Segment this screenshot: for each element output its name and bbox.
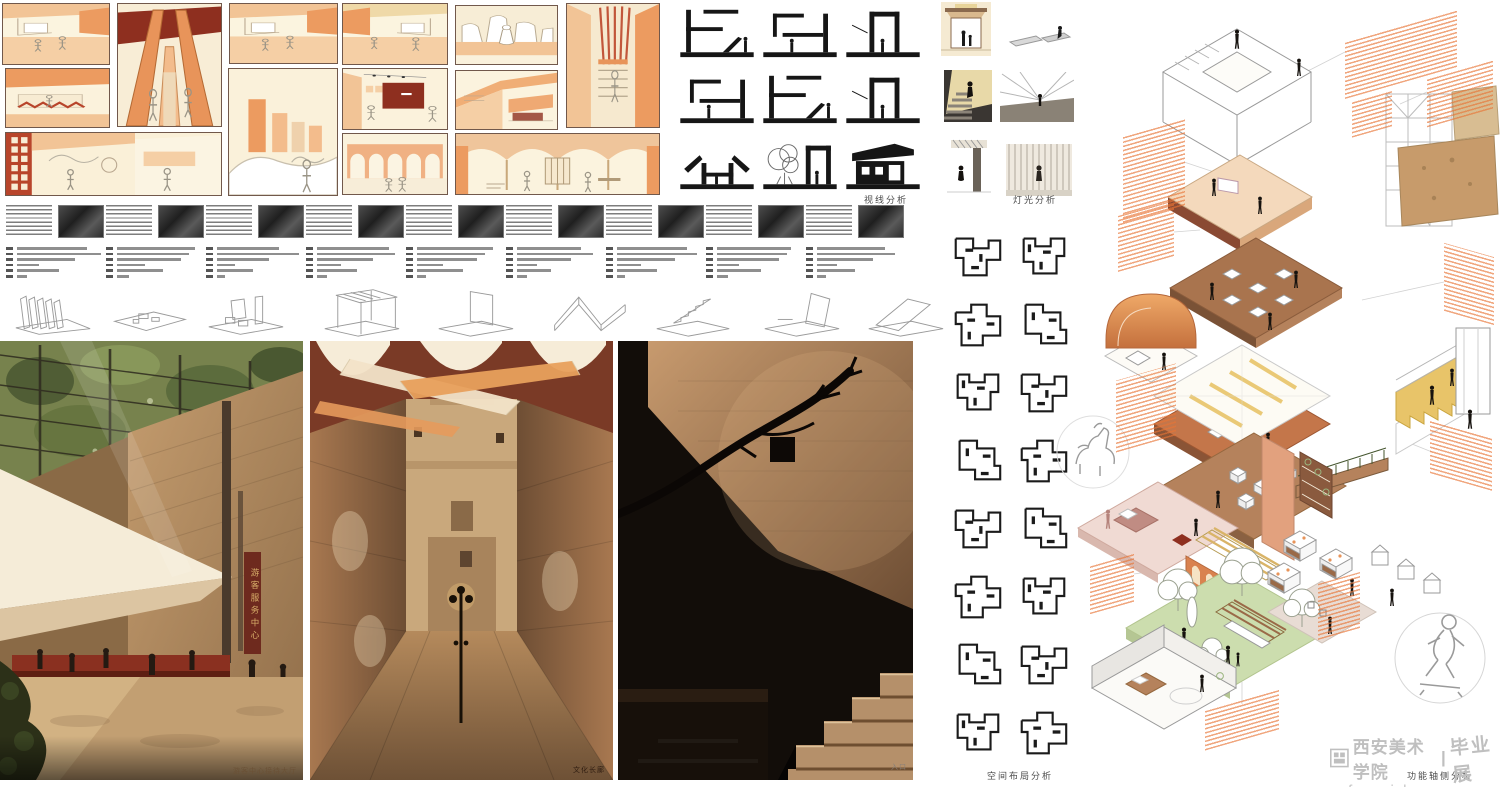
story-bar-label (106, 253, 113, 256)
story-bar (817, 264, 837, 267)
story-bar-label (306, 264, 313, 267)
story-bar (517, 247, 581, 250)
story-bar-label (306, 275, 313, 278)
render-caption: 文化长廊 (573, 765, 605, 775)
story-paragraph (206, 205, 252, 236)
story-unit (206, 205, 306, 281)
model-sketch (200, 286, 290, 338)
story-bar (217, 269, 253, 272)
section-diagram (678, 70, 756, 126)
story-bar-label (506, 264, 513, 267)
annotation-block (1444, 243, 1494, 325)
story-photo (858, 205, 904, 238)
story-bar-label (306, 258, 313, 261)
story-bar (217, 258, 269, 261)
floorplan-glyph (948, 364, 1006, 420)
story-bar (617, 253, 697, 256)
story-bar (417, 247, 493, 250)
story-unit (706, 205, 806, 281)
floorplan-glyph (948, 704, 1006, 760)
story-paragraph (406, 205, 452, 236)
story-bar-label (506, 253, 513, 256)
story-bar-label (306, 253, 313, 256)
story-bar-label (406, 253, 413, 256)
story-bar (117, 275, 129, 278)
story-unit (606, 205, 706, 281)
story-bar-label (306, 269, 313, 272)
story-bar (717, 275, 728, 278)
story-bar (317, 247, 389, 250)
section-diagram (761, 4, 839, 60)
story-unit (306, 205, 406, 281)
story-bar (517, 253, 593, 256)
render-corridor: 文化长廊 (310, 341, 613, 780)
watermark-school: 西安美术学院 (1353, 733, 1437, 783)
section-diagram (761, 136, 839, 192)
presentation-board: 视线分析 (0, 0, 1500, 787)
story-bar-label (206, 253, 213, 256)
collage-box (2, 3, 110, 65)
story-bar-label (506, 269, 513, 272)
story-bar-label (506, 258, 513, 261)
story-bar-label (306, 247, 313, 250)
story-bar-label (606, 269, 613, 272)
story-photo (758, 205, 804, 238)
story-paragraph (6, 205, 52, 236)
story-bar-label (606, 253, 613, 256)
story-unit (406, 205, 506, 281)
section-diagram (844, 136, 922, 192)
story-bar (417, 253, 485, 256)
floorplan-glyph (948, 636, 1006, 692)
story-bar (817, 275, 826, 278)
story-unit (806, 205, 906, 281)
story-bar-label (6, 258, 13, 261)
model-sketch (860, 286, 950, 338)
story-bar (817, 247, 885, 250)
story-bar-label (706, 264, 713, 267)
story-photo (558, 205, 604, 238)
story-bar (617, 258, 675, 261)
story-bar (717, 264, 739, 267)
story-bar-label (206, 269, 213, 272)
collage-box (342, 68, 448, 130)
model-sketch (8, 286, 98, 338)
story-bar (517, 275, 527, 278)
story-bar-label (6, 264, 13, 267)
story-bar (17, 264, 39, 267)
story-bar-label (506, 247, 513, 250)
collage-box (5, 68, 110, 128)
story-bar-label (6, 269, 13, 272)
story-bar (717, 247, 791, 250)
story-bar (817, 253, 895, 256)
story-bar (217, 275, 225, 278)
story-bar-label (206, 275, 213, 278)
render-caption: 入口 (891, 762, 907, 772)
collage-box (229, 3, 338, 64)
story-bar-label (406, 269, 413, 272)
section-diagram (678, 4, 756, 60)
floorplan-glyph (948, 296, 1006, 352)
watermark-divider: | (1441, 748, 1447, 768)
story-paragraph (106, 205, 152, 236)
floorplan-glyph (948, 500, 1006, 556)
story-bar (817, 258, 873, 261)
watermark: 西安美术学院 | 毕业展 xafa.meishu.org.cn (1330, 731, 1500, 787)
story-bar (117, 269, 163, 272)
story-photo (258, 205, 304, 238)
story-bar (517, 264, 537, 267)
story-bar-label (106, 275, 113, 278)
floorplan-glyph (948, 432, 1006, 488)
story-bar-label (106, 258, 113, 261)
render-entrance: 入口 (618, 341, 913, 780)
story-bar (617, 275, 625, 278)
story-paragraph (806, 205, 852, 236)
collage-box (455, 133, 660, 195)
story-bar (417, 269, 463, 272)
story-bar-label (106, 264, 113, 267)
story-bar (117, 264, 145, 267)
model-sketch (544, 286, 634, 338)
story-bar-label (6, 253, 13, 256)
story-bar-label (406, 258, 413, 261)
collage-box (566, 3, 660, 128)
story-bar-label (606, 258, 613, 261)
floorplan-glyph (948, 568, 1006, 624)
story-bar (517, 269, 551, 272)
story-bar (217, 264, 235, 267)
story-paragraph (506, 205, 552, 236)
story-bar-label (706, 253, 713, 256)
story-bar-label (606, 247, 613, 250)
section-diagram (844, 4, 922, 60)
story-bar-label (806, 275, 813, 278)
story-bar-label (6, 247, 13, 250)
story-bar-label (706, 247, 713, 250)
story-bar (717, 269, 761, 272)
collage-box (342, 3, 448, 65)
model-sketch (430, 286, 520, 338)
school-logo-icon (1330, 746, 1349, 770)
model-sketch (756, 286, 846, 338)
story-bar-label (706, 258, 713, 261)
column-light-thumb (947, 138, 991, 196)
render-caption: 游客中心接待大厅 (233, 766, 297, 776)
render-courtyard: 游客服务中心 游客中心接待大厅 (0, 341, 303, 780)
collage-box (342, 133, 448, 195)
story-bar (217, 247, 279, 250)
story-bar (617, 264, 641, 267)
story-bar (17, 258, 75, 261)
story-bar (317, 269, 357, 272)
story-bar-label (106, 247, 113, 250)
story-bar (17, 275, 27, 278)
story-photo (458, 205, 504, 238)
visitor-center-sign: 游客服务中心 (244, 552, 261, 654)
story-paragraph (606, 205, 652, 236)
story-bar (217, 253, 299, 256)
story-bar-label (506, 275, 513, 278)
story-bar-label (806, 258, 813, 261)
section-diagram (844, 70, 922, 126)
story-bar (717, 258, 779, 261)
story-unit (106, 205, 206, 281)
story-bar-label (6, 275, 13, 278)
collage-box (228, 68, 338, 196)
collage-box (455, 5, 558, 65)
story-bar-label (206, 264, 213, 267)
story-bar (417, 275, 426, 278)
story-bar (417, 264, 443, 267)
story-bar (717, 253, 787, 256)
story-paragraph (306, 205, 352, 236)
story-bar-label (806, 269, 813, 272)
story-bar (817, 269, 855, 272)
story-bar-label (806, 264, 813, 267)
model-sketch (648, 286, 738, 338)
story-unit (6, 205, 106, 281)
story-bar (417, 258, 477, 261)
story-bar (317, 264, 341, 267)
collage-box (5, 132, 222, 196)
story-photo (158, 205, 204, 238)
story-bar (317, 275, 327, 278)
section-diagram (678, 136, 756, 192)
story-photo (658, 205, 704, 238)
sightline-analysis-label: 视线分析 (846, 193, 926, 206)
story-bar-label (606, 264, 613, 267)
story-bar (517, 258, 571, 261)
story-bar (117, 253, 189, 256)
story-bar (617, 247, 687, 250)
stairs-light-thumb (944, 70, 992, 122)
story-bar (17, 269, 59, 272)
story-bar (117, 258, 181, 261)
floorplan-glyph (948, 228, 1006, 284)
story-bar-label (706, 275, 713, 278)
story-bar (317, 253, 395, 256)
story-bar-label (206, 258, 213, 261)
section-diagram (761, 70, 839, 126)
story-bar-label (206, 247, 213, 250)
collage-box (455, 70, 558, 130)
model-sketch (316, 286, 406, 338)
story-bar (117, 247, 195, 250)
story-bar-label (606, 275, 613, 278)
story-bar-label (806, 253, 813, 256)
story-bar-label (406, 247, 413, 250)
watermark-exhibition: 毕业展 (1448, 729, 1500, 787)
story-bar (17, 247, 87, 250)
collage-box (117, 3, 222, 127)
story-bar-label (406, 275, 413, 278)
story-photo (358, 205, 404, 238)
story-bar-label (406, 264, 413, 267)
story-photo (58, 205, 104, 238)
story-bar (617, 269, 657, 272)
story-unit (506, 205, 606, 281)
story-bar-label (106, 269, 113, 272)
story-bar (317, 258, 373, 261)
arch-light-thumb (941, 2, 991, 56)
story-bar-label (706, 269, 713, 272)
model-sketch (104, 286, 194, 338)
story-paragraph (706, 205, 752, 236)
story-bar-label (806, 247, 813, 250)
story-bar (17, 253, 101, 256)
